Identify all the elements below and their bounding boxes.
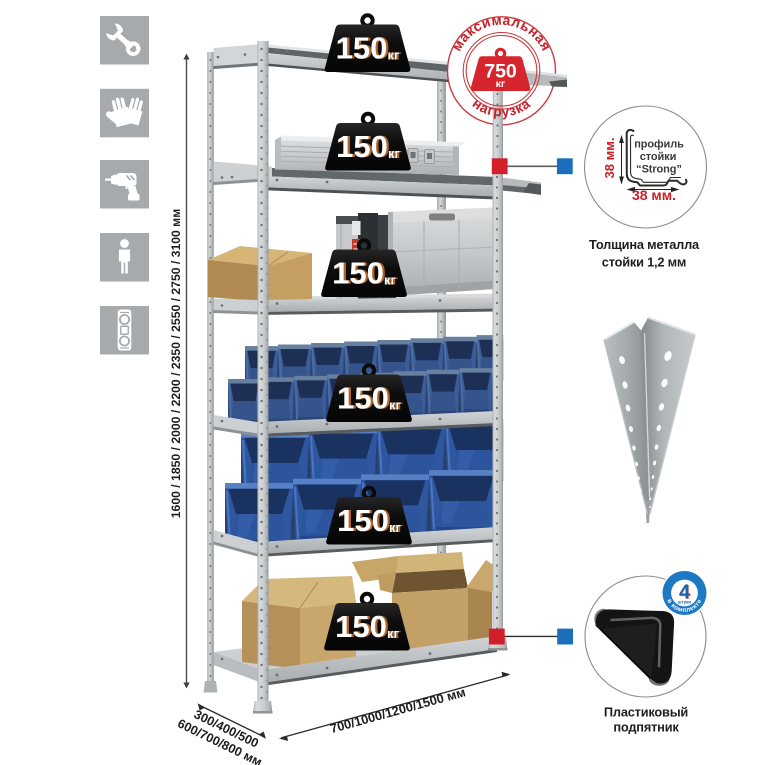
svg-text:1600 / 1850 / 2000 / 2200 / 23: 1600 / 1850 / 2000 / 2200 / 2350 / 2550 … [169,209,183,518]
svg-text:Пластиковый: Пластиковый [604,705,688,720]
svg-text:кг: кг [496,78,506,90]
svg-text:штуки: штуки [678,600,692,605]
svg-text:“Strong”: “Strong” [636,164,682,176]
svg-text:Толщина металла: Толщина металла [589,237,700,252]
svg-text:подпятник: подпятник [613,720,679,735]
svg-text:38 мм.: 38 мм. [602,138,617,179]
svg-text:профиль: профиль [634,139,684,151]
svg-text:стойки: стойки [640,151,677,163]
svg-text:стойки 1,2 мм: стойки 1,2 мм [602,255,686,270]
svg-text:38 мм.: 38 мм. [632,187,676,203]
